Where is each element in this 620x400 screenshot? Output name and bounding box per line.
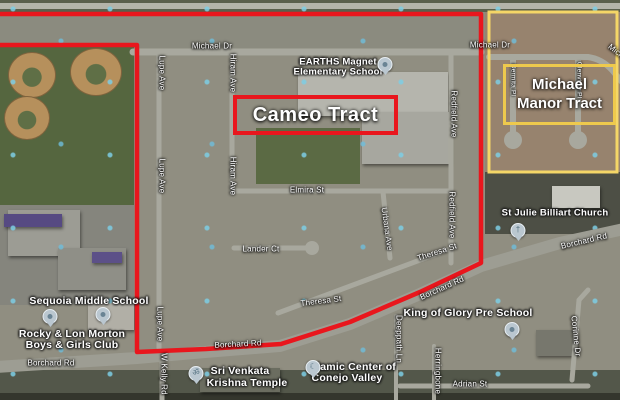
street-label-redfield-ave: Redfield Ave: [448, 191, 457, 238]
street-label-michael-dr: Michael Dr: [192, 42, 232, 51]
street-label-redfield-ave: Redfield Ave: [450, 90, 459, 137]
poi-label-club-line2: Boys & Girls Club: [26, 339, 119, 351]
street-label-lupe-ave: Lupe Ave: [158, 159, 167, 194]
cameo-tract-label-box: Cameo Tract: [233, 95, 398, 135]
school-pin-icon: [378, 57, 393, 72]
street-label-borchard-rd: Borchard Rd: [27, 359, 74, 368]
street-label-michael-dr: Michael Dr: [470, 41, 510, 50]
club-pin-icon: [96, 307, 111, 322]
poi-label-islamic-line2: Conejo Valley: [312, 372, 383, 384]
poi-label-earths-line2: Elementary School: [294, 67, 383, 78]
street-label-adrian-st: Adrian St: [453, 380, 488, 389]
street-label-elmira-st: Elmira St: [290, 186, 324, 195]
michael-manor-label: Michael Manor Tract: [517, 76, 602, 114]
poi-label-temple-line2: Krishna Temple: [207, 377, 288, 389]
street-label-deeppath-ln: Deeppath Ln: [395, 315, 404, 363]
cameo-tract-label: Cameo Tract: [253, 104, 379, 127]
poi-label-st-julie: St Julie Billiart Church: [502, 208, 609, 219]
poi-label-king-of-glory: King of Glory Pre School: [403, 307, 532, 319]
street-label-hiram-ave: Hiram Ave: [229, 157, 238, 196]
street-label-lupe-ave: Lupe Ave: [158, 56, 167, 91]
map-canvas: Cameo Tract Michael Manor Tract Michael …: [0, 0, 620, 400]
street-label-lander-ct: Lander Ct: [243, 245, 280, 254]
poi-label-sequoia: Sequoia Middle School: [29, 295, 148, 307]
street-label-w-kelly-rd: W Kelly Rd: [160, 353, 169, 395]
street-label-lupe-ave: Lupe Ave: [156, 307, 165, 342]
temple-pin-icon: ॐ: [189, 366, 204, 381]
street-label-herringbone: Herringbone: [434, 348, 443, 394]
preschool-pin-icon: [505, 322, 520, 337]
mosque-pin-icon: ☾: [306, 360, 321, 375]
school-pin-icon: [43, 309, 58, 324]
michael-manor-label-box: Michael Manor Tract: [503, 64, 616, 125]
church-pin-icon: †: [511, 223, 526, 238]
poi-label-temple-line1: Sri Venkata: [211, 365, 270, 377]
street-label-hiram-ave: Hiram Ave: [229, 54, 238, 93]
